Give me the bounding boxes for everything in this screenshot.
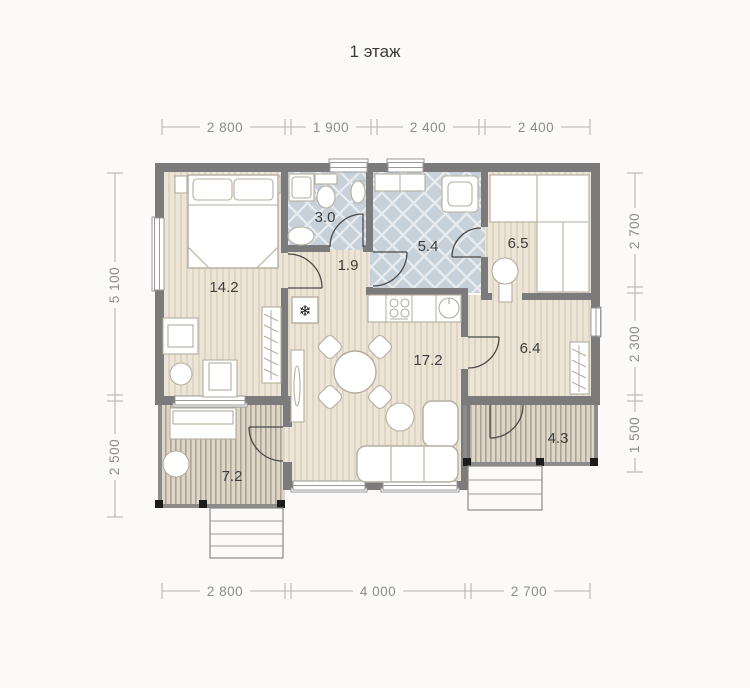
dim-bottom-3: 2 700 [511, 584, 547, 599]
wall-bedroom-hall-upper [281, 172, 288, 253]
counter-large-bath [375, 174, 425, 191]
window-bedroom-terrace [173, 396, 247, 407]
terrace-post [463, 458, 471, 466]
terrace-post [199, 500, 207, 508]
wall-bedroom-hall-lower [281, 288, 288, 396]
wall-living-hall-a [461, 295, 468, 337]
bed [188, 175, 278, 268]
dim-left-2: 2 500 [107, 439, 122, 475]
terrace-left-border-bottom [158, 504, 285, 508]
room-label-terrace-right: 4.3 [548, 430, 569, 447]
dim-top-3: 2 400 [410, 120, 446, 135]
room-label-entrance-hall: 6.4 [520, 340, 541, 357]
dim-bottom-2: 4 000 [360, 584, 396, 599]
dim-right-2: 2 300 [627, 326, 642, 362]
terrace-right-deck [463, 400, 598, 464]
washer-small-bath [289, 174, 314, 201]
washer-large-bath [442, 176, 478, 212]
dim-top-1: 2 800 [207, 120, 243, 135]
room-label-storage: 6.5 [508, 235, 529, 252]
fridge: ❄ [292, 297, 318, 323]
steps-right [468, 466, 542, 510]
room-label-bathroom-small: 3.0 [315, 209, 336, 226]
floor-plan-canvas: 1 этаж [0, 0, 750, 688]
wall-bottom-hall [461, 396, 600, 405]
window-top-bath [329, 159, 368, 172]
dim-bottom-1: 2 800 [207, 584, 243, 599]
hall-wardrobe [570, 342, 589, 394]
dim-right-3: 1 500 [627, 417, 642, 453]
wall-exterior-right [591, 163, 600, 405]
room-label-bedroom: 14.2 [209, 279, 238, 296]
sink-small-bath [351, 181, 365, 203]
wall-storage-hall-b [522, 293, 600, 300]
bedroom-desk [163, 318, 198, 354]
bedroom-wardrobe [262, 307, 281, 383]
wall-kitchen-top [366, 288, 468, 295]
terrace-right-border-bottom [463, 462, 598, 466]
wall-bath-storage-a [481, 172, 488, 227]
tv-console [291, 350, 304, 422]
bedroom-armchair [203, 360, 237, 397]
bedroom-stool [170, 363, 192, 385]
terrace-left-border-left [158, 405, 162, 508]
terrace-table [163, 451, 189, 477]
room-label-living-kitchen: 17.2 [413, 352, 442, 369]
steps-left [210, 508, 283, 558]
page-title: 1 этаж [350, 42, 402, 61]
terrace-right-border-left [463, 405, 467, 466]
dimension-bottom: 2 800 4 000 2 700 [162, 583, 590, 599]
kitchen-counter [368, 295, 461, 322]
terrace-post [536, 458, 544, 466]
pouf [386, 403, 414, 431]
window-top-bath-large [387, 159, 424, 172]
terrace-right-border-right [594, 405, 598, 466]
terrace-post [590, 458, 598, 466]
kitchen-sink [439, 298, 459, 318]
wall-storage-hall-a [481, 293, 492, 300]
terrace-bench [170, 408, 236, 439]
terrace-post [155, 500, 163, 508]
fridge-snowflake-icon: ❄ [299, 303, 312, 320]
toilet [315, 174, 337, 208]
dim-top-2: 1 900 [313, 120, 349, 135]
wall-living-hall-b [461, 369, 468, 396]
window-bedroom-left [152, 217, 164, 291]
wall-exterior-top [155, 163, 600, 172]
window-hall-right [591, 307, 601, 337]
nightstand-left [175, 176, 187, 193]
room-label-hallway: 1.9 [338, 257, 359, 274]
basin [288, 227, 314, 245]
wall-bath-small-bottom-a [281, 245, 330, 252]
dim-top-4: 2 400 [518, 120, 554, 135]
wall-hall-bath-large-a [366, 172, 373, 252]
dining-table [334, 351, 376, 393]
room-label-terrace-left: 7.2 [222, 468, 243, 485]
room-label-bathroom-large: 5.4 [418, 238, 439, 255]
window-living-bottom-left [291, 481, 367, 492]
terrace-post [277, 500, 285, 508]
dim-left-1: 5 100 [107, 267, 122, 303]
dim-right-1: 2 700 [627, 213, 642, 249]
